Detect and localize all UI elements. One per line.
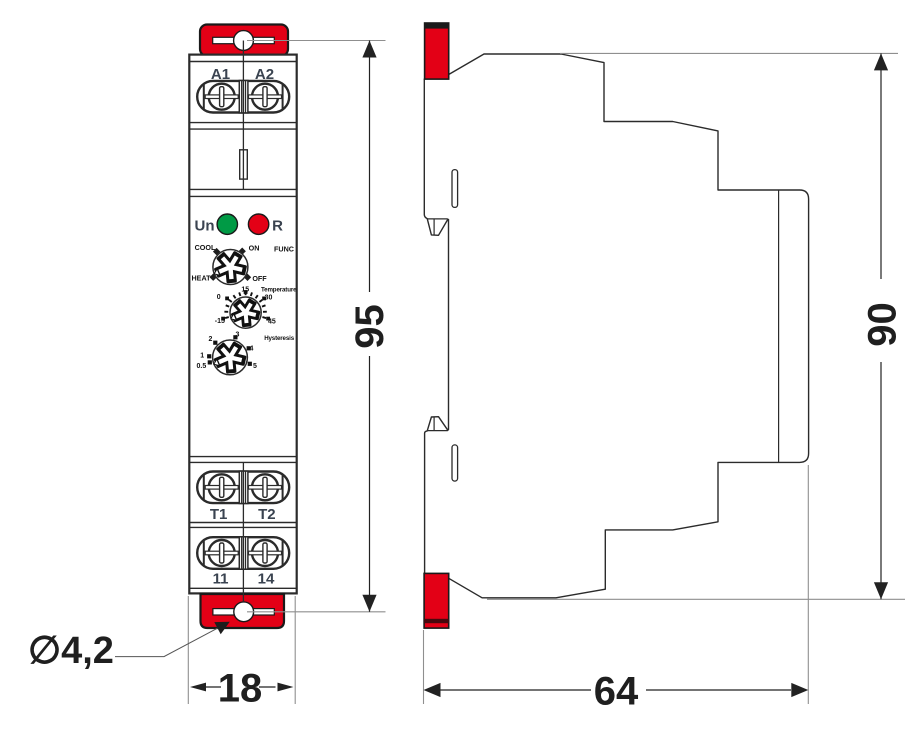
svg-text:4: 4: [249, 346, 253, 353]
svg-text:15: 15: [241, 286, 249, 293]
svg-text:14: 14: [258, 571, 275, 588]
svg-text:Temperature: Temperature: [261, 287, 297, 294]
svg-text:-15: -15: [215, 318, 225, 325]
svg-text:1: 1: [200, 352, 204, 359]
svg-text:∅4,2: ∅4,2: [28, 630, 114, 672]
svg-text:T2: T2: [258, 506, 276, 523]
svg-text:90: 90: [861, 302, 905, 347]
svg-text:T1: T1: [210, 506, 228, 523]
svg-text:5: 5: [253, 363, 257, 370]
svg-text:30: 30: [265, 295, 273, 302]
svg-text:0: 0: [217, 294, 221, 301]
svg-text:HEAT: HEAT: [191, 274, 211, 283]
svg-text:64: 64: [594, 669, 639, 713]
svg-text:3: 3: [236, 331, 240, 338]
svg-text:95: 95: [348, 304, 392, 349]
svg-text:18: 18: [218, 666, 263, 710]
svg-text:FUNC: FUNC: [274, 244, 294, 253]
svg-text:ON: ON: [249, 244, 260, 253]
svg-text:Hysteresis: Hysteresis: [264, 335, 295, 342]
svg-text:11: 11: [213, 571, 229, 588]
svg-text:2: 2: [208, 336, 212, 343]
svg-text:COOL: COOL: [195, 243, 216, 252]
svg-text:OFF: OFF: [252, 274, 267, 283]
svg-text:R: R: [272, 217, 283, 234]
svg-text:45: 45: [268, 319, 276, 326]
svg-text:0.5: 0.5: [197, 363, 207, 370]
svg-text:Un: Un: [195, 217, 215, 234]
